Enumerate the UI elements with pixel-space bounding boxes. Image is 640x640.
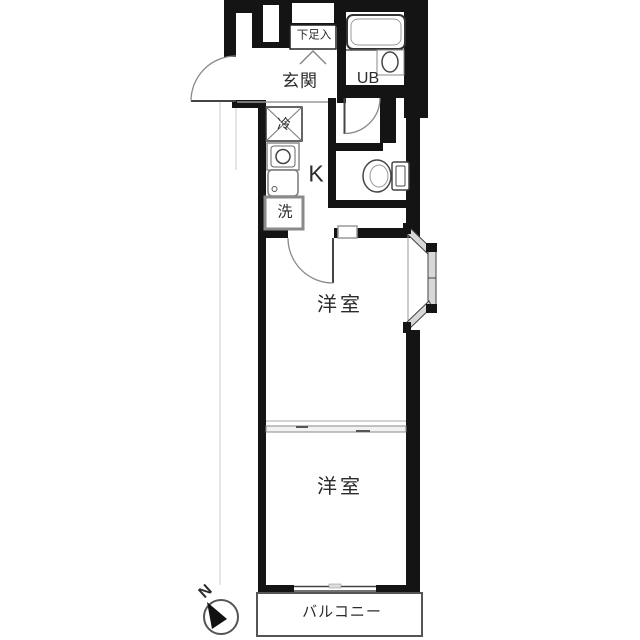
sink-icon (268, 170, 298, 196)
bathtub-icon (347, 15, 405, 49)
floorplan-drawing (0, 0, 640, 640)
toilet-icon (363, 160, 409, 192)
compass-icon (204, 600, 238, 634)
bay-window (403, 223, 437, 333)
shoe-storage-label: 下足入 (297, 30, 332, 42)
balcony-label: バルコニー (302, 605, 382, 620)
unit-bath-label: UB (357, 71, 379, 87)
floorplan: 玄関 下足入 UB K 冷 洗 洋室 洋室 バルコニー N (0, 0, 640, 640)
entrance-door-swing-arc (191, 56, 236, 101)
toilet-door-swing-arc (345, 98, 381, 134)
western-room-1-label: 洋室 (317, 295, 363, 315)
sliding-partition (266, 421, 406, 432)
refrigerator-label: 冷 (277, 117, 291, 131)
folding-door-symbol (300, 51, 326, 64)
stove-icon (267, 143, 299, 170)
balcony-window (294, 584, 376, 591)
entrance-label: 玄関 (282, 73, 318, 90)
boundary-lines (220, 100, 236, 585)
kitchen-label: K (308, 163, 323, 186)
room1-door-swing-arc (288, 238, 333, 283)
washing-machine-label: 洗 (277, 205, 292, 220)
western-room-2-label: 洋室 (317, 477, 363, 497)
